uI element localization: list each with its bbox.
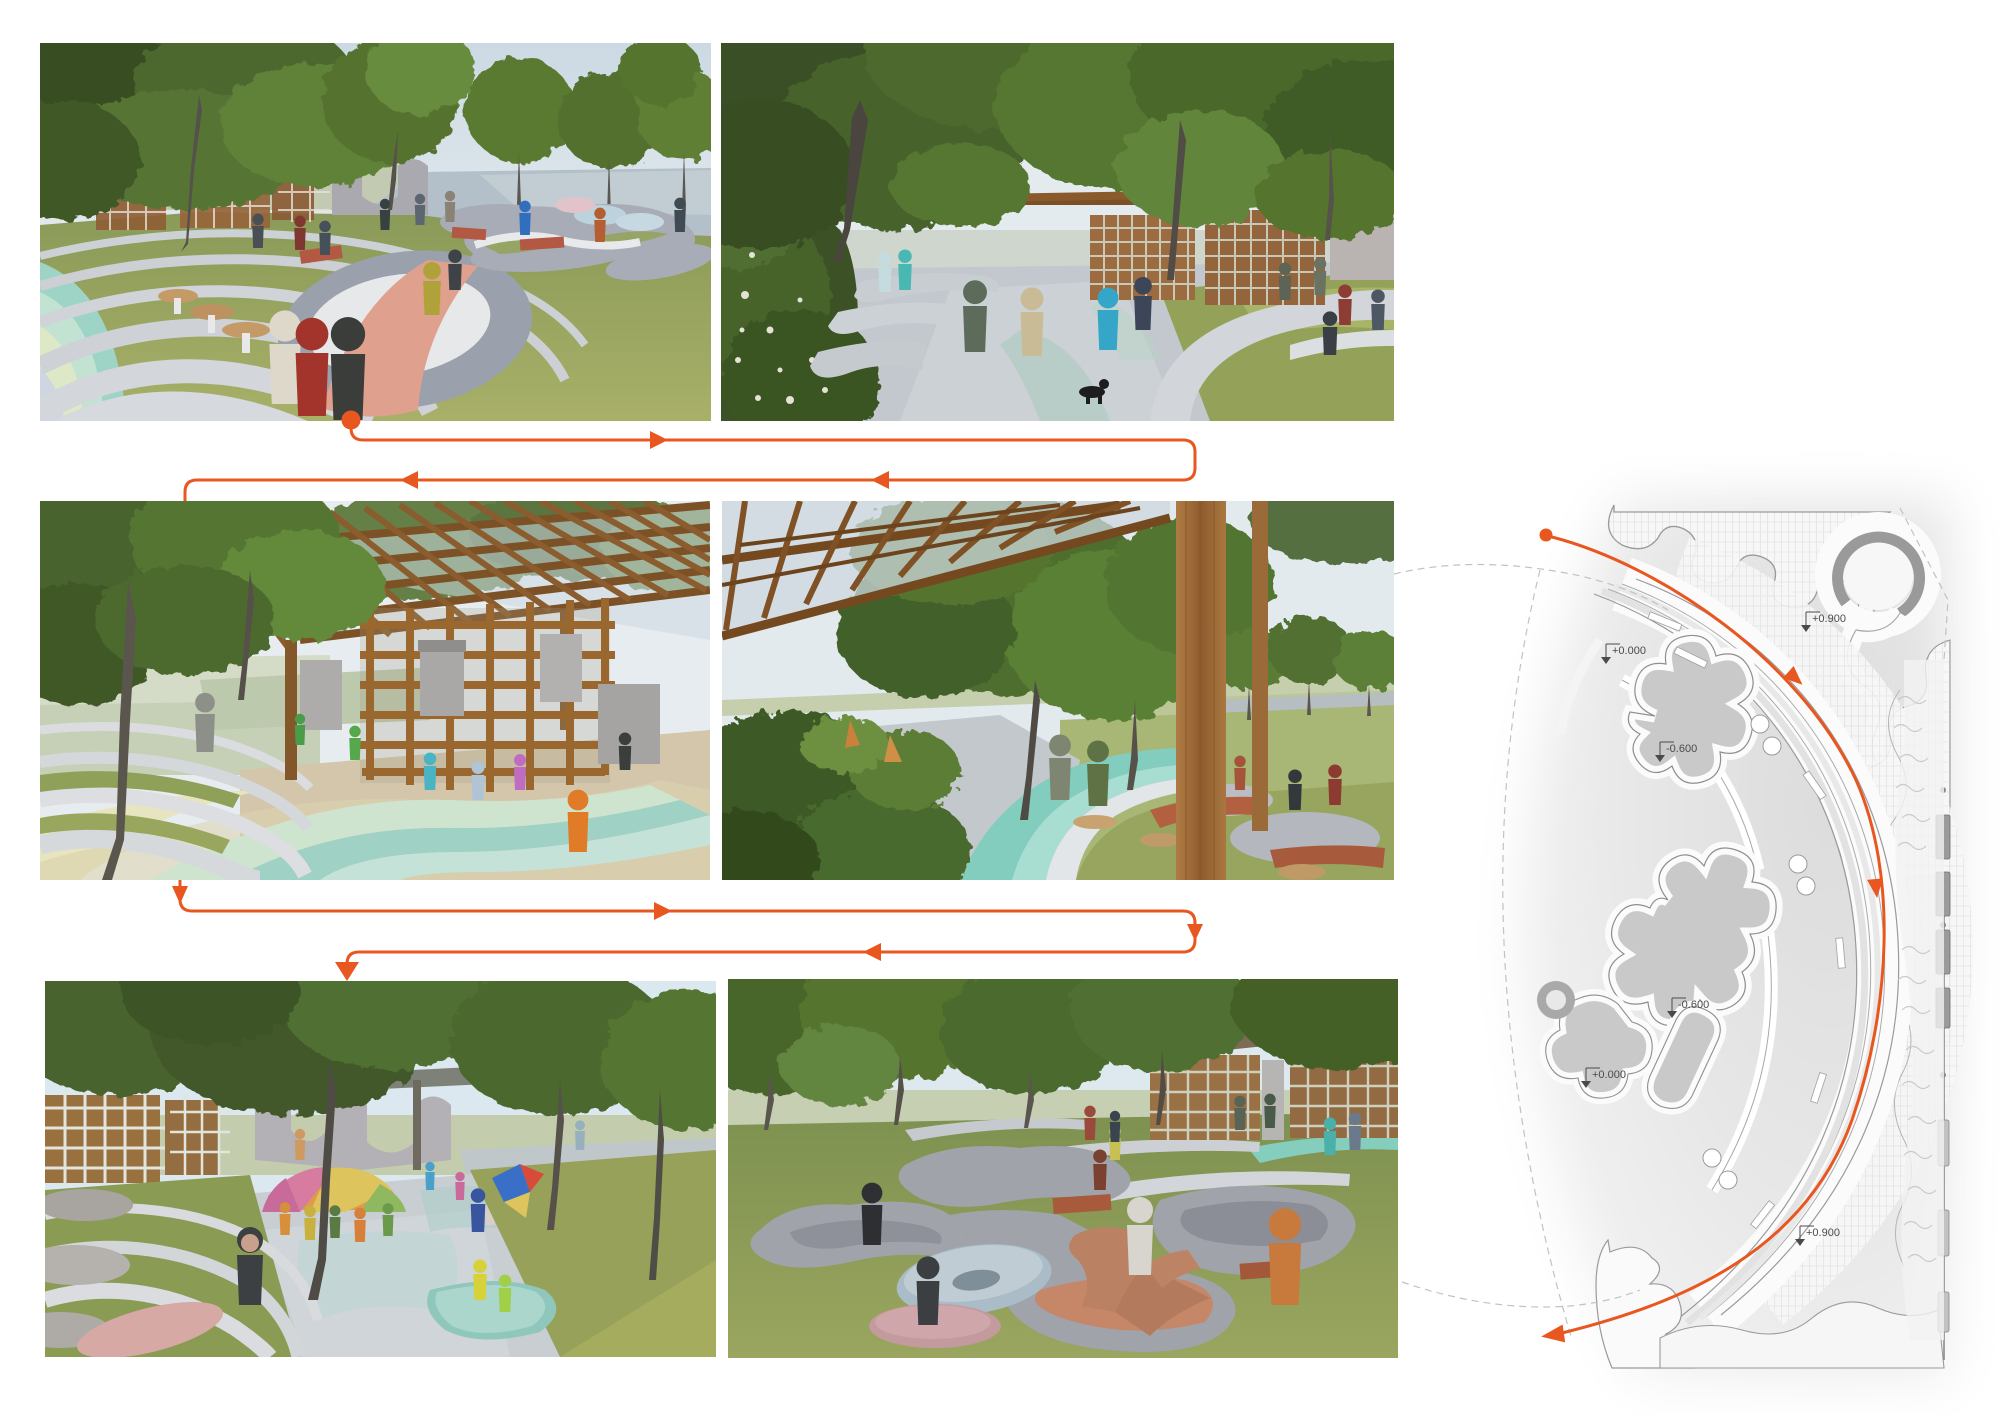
svg-text:-0.600: -0.600 bbox=[1666, 743, 1697, 755]
svg-text:+0.000: +0.000 bbox=[1612, 645, 1646, 657]
svg-text:+0.900: +0.900 bbox=[1812, 613, 1846, 625]
svg-text:+0.000: +0.000 bbox=[1592, 1069, 1626, 1081]
svg-text:+0.900: +0.900 bbox=[1806, 1227, 1840, 1239]
svg-text:-0.600: -0.600 bbox=[1678, 999, 1709, 1011]
